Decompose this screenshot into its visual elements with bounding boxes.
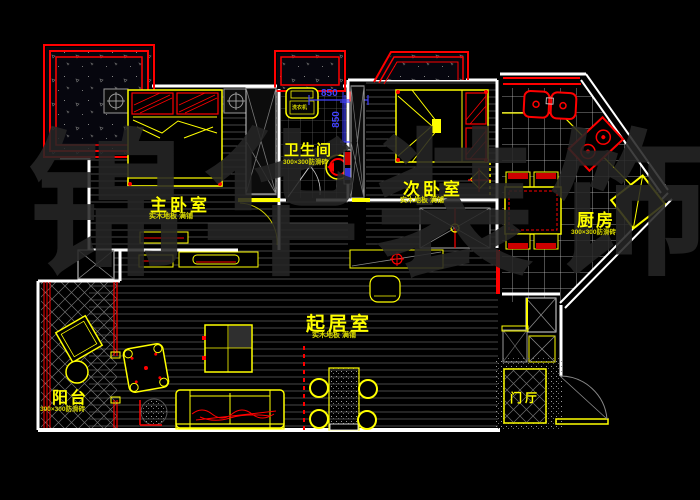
hall-cabinet [503, 330, 527, 362]
sofa [176, 390, 284, 429]
bay-window-bathroom [275, 51, 345, 91]
washing-machine [286, 88, 318, 118]
dimension-850-vertical: 850 [331, 111, 342, 128]
room-sublabel-living: 实木地板 满铺 [312, 330, 356, 340]
foyer-area [494, 298, 608, 430]
square-cabinet [202, 325, 252, 372]
entry-door [556, 376, 608, 424]
potted-plant [140, 399, 167, 425]
room-sublabel-bathroom: 300×300防滑砖 [283, 156, 328, 166]
ceiling-fan-symbol [104, 89, 128, 113]
room-sublabel-master: 实木地板 满铺 [149, 211, 193, 221]
room-sublabel-second: 实木地板 满铺 [400, 195, 444, 205]
balcony-table [66, 361, 88, 383]
room-label-foyer: 门厅 [510, 389, 540, 406]
stool [358, 411, 376, 429]
bay-window-second [374, 52, 468, 84]
stool [310, 379, 328, 397]
armchair [122, 343, 169, 393]
stool [310, 410, 328, 428]
hall-cabinet [526, 298, 556, 332]
room-sublabel-balcony: 300×300防滑砖 [40, 403, 85, 413]
stool [359, 380, 377, 398]
room-sublabel-kitchen: 300×300防滑砖 [571, 226, 616, 236]
dimension-850-horizontal: 850 [321, 88, 338, 99]
floorplan-canvas: 锦华装饰 主卧室 实木地板 满铺 卫生间 300×300防滑砖 次卧室 实木地板… [0, 0, 700, 500]
washer-label: 洗衣机 [292, 104, 307, 111]
ceiling-fan-symbol [224, 89, 248, 113]
